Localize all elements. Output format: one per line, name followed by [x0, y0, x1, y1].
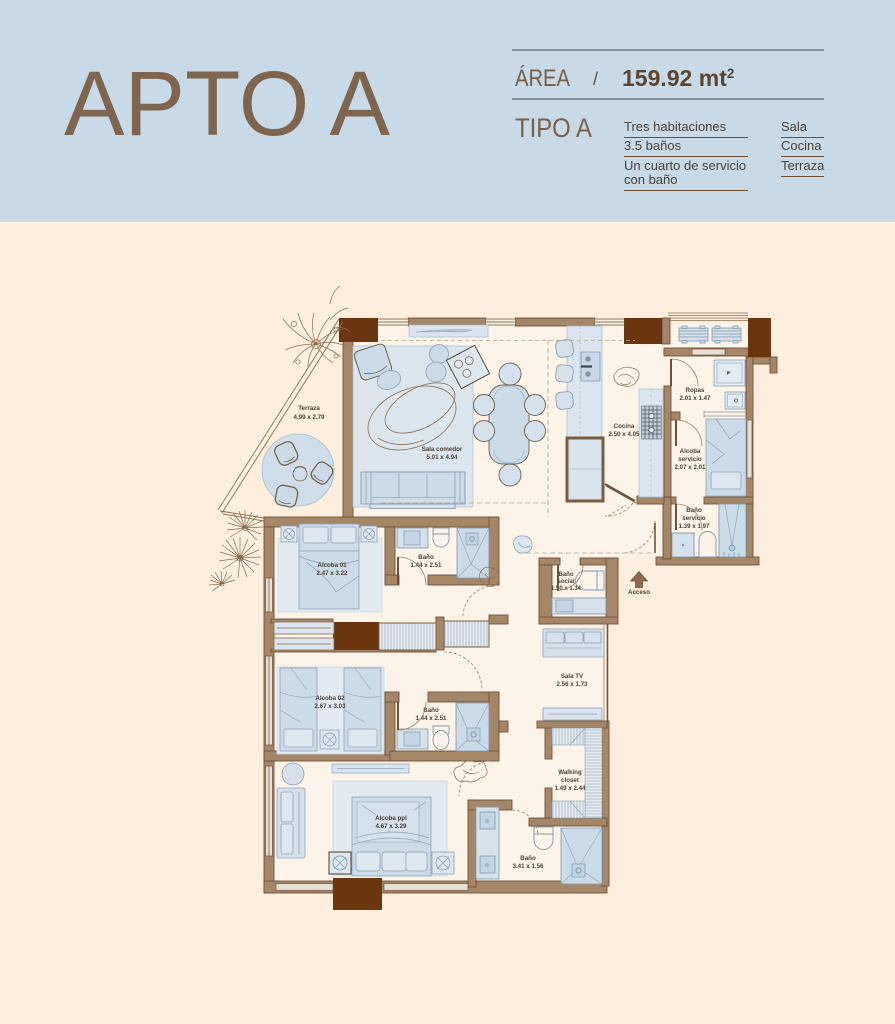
- svg-text:4.99 x 2.79: 4.99 x 2.79: [294, 414, 326, 421]
- svg-text:Tres habitaciones: Tres habitaciones: [624, 119, 727, 134]
- svg-text:Alcoba: Alcoba: [680, 448, 701, 455]
- svg-text:4.67 x 3.29: 4.67 x 3.29: [376, 823, 408, 830]
- svg-text:2.01 x 1.47: 2.01 x 1.47: [680, 395, 712, 402]
- svg-text:/: /: [593, 69, 598, 89]
- svg-text:2.50 x 4.05: 2.50 x 4.05: [609, 431, 641, 438]
- svg-text:5.01 x 4.94: 5.01 x 4.94: [427, 454, 459, 461]
- svg-text:Sala comedor: Sala comedor: [422, 446, 463, 453]
- svg-text:closet: closet: [561, 777, 579, 784]
- svg-text:159.92 mt2: 159.92 mt2: [622, 65, 734, 91]
- svg-text:social: social: [557, 579, 574, 585]
- svg-text:Alcoba 02: Alcoba 02: [315, 695, 345, 702]
- svg-text:2.07 x 2.01: 2.07 x 2.01: [675, 464, 707, 471]
- svg-text:Alcoba 01: Alcoba 01: [317, 562, 347, 569]
- svg-text:Cocina: Cocina: [614, 423, 635, 430]
- svg-text:2.56 x 1.73: 2.56 x 1.73: [557, 681, 589, 688]
- svg-text:TIPO A: TIPO A: [515, 113, 592, 143]
- svg-text:Baño: Baño: [418, 554, 434, 561]
- svg-text:con baño: con baño: [624, 172, 678, 187]
- svg-text:Cocina: Cocina: [781, 138, 822, 153]
- svg-text:Walking: Walking: [558, 769, 582, 776]
- svg-text:3.41 x 1.56: 3.41 x 1.56: [513, 863, 545, 870]
- svg-text:ÁREA: ÁREA: [515, 65, 570, 92]
- svg-text:servicio: servicio: [678, 456, 702, 463]
- svg-text:Acceso: Acceso: [628, 589, 650, 596]
- svg-text:Baño: Baño: [686, 507, 702, 514]
- svg-text:Ropas: Ropas: [686, 387, 705, 394]
- svg-text:1.39 x 1.97: 1.39 x 1.97: [679, 523, 711, 530]
- svg-text:Terraza: Terraza: [298, 405, 320, 412]
- svg-text:Sala: Sala: [781, 119, 808, 134]
- svg-text:Baño: Baño: [520, 855, 536, 862]
- svg-text:1.49 x 2.44: 1.49 x 2.44: [555, 785, 587, 792]
- svg-text:Baño: Baño: [559, 572, 574, 578]
- svg-text:APTO A: APTO A: [64, 53, 391, 155]
- svg-text:servicio: servicio: [682, 515, 706, 522]
- svg-text:2.47 x 3.22: 2.47 x 3.22: [317, 570, 349, 577]
- svg-text:Un cuarto de servicio: Un cuarto de servicio: [624, 158, 746, 173]
- svg-text:Alcoba ppl: Alcoba ppl: [375, 815, 407, 822]
- svg-text:3.5 baños: 3.5 baños: [624, 138, 682, 153]
- svg-text:Terraza: Terraza: [781, 158, 825, 173]
- svg-text:Sala TV: Sala TV: [561, 673, 584, 680]
- svg-text:2.67 x 3.03: 2.67 x 3.03: [315, 703, 347, 710]
